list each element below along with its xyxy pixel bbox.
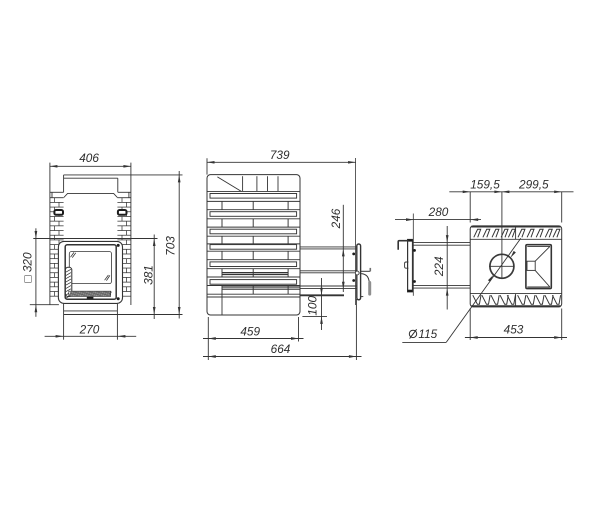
svg-text:664: 664: [271, 342, 291, 356]
svg-text:115: 115: [418, 327, 437, 341]
svg-text:159,5: 159,5: [470, 178, 500, 192]
svg-text:100: 100: [306, 296, 320, 316]
svg-text:381: 381: [141, 265, 155, 285]
svg-text:406: 406: [79, 151, 99, 165]
svg-text:224: 224: [432, 256, 446, 277]
svg-text:453: 453: [504, 323, 524, 337]
svg-text:246: 246: [329, 208, 343, 229]
svg-text:299,5: 299,5: [518, 178, 549, 192]
svg-text:459: 459: [240, 324, 260, 338]
svg-text:280: 280: [428, 205, 449, 219]
svg-text:□ 320: □ 320: [20, 252, 34, 283]
svg-text:270: 270: [79, 322, 100, 336]
svg-text:703: 703: [164, 236, 178, 256]
svg-text:739: 739: [270, 148, 290, 162]
